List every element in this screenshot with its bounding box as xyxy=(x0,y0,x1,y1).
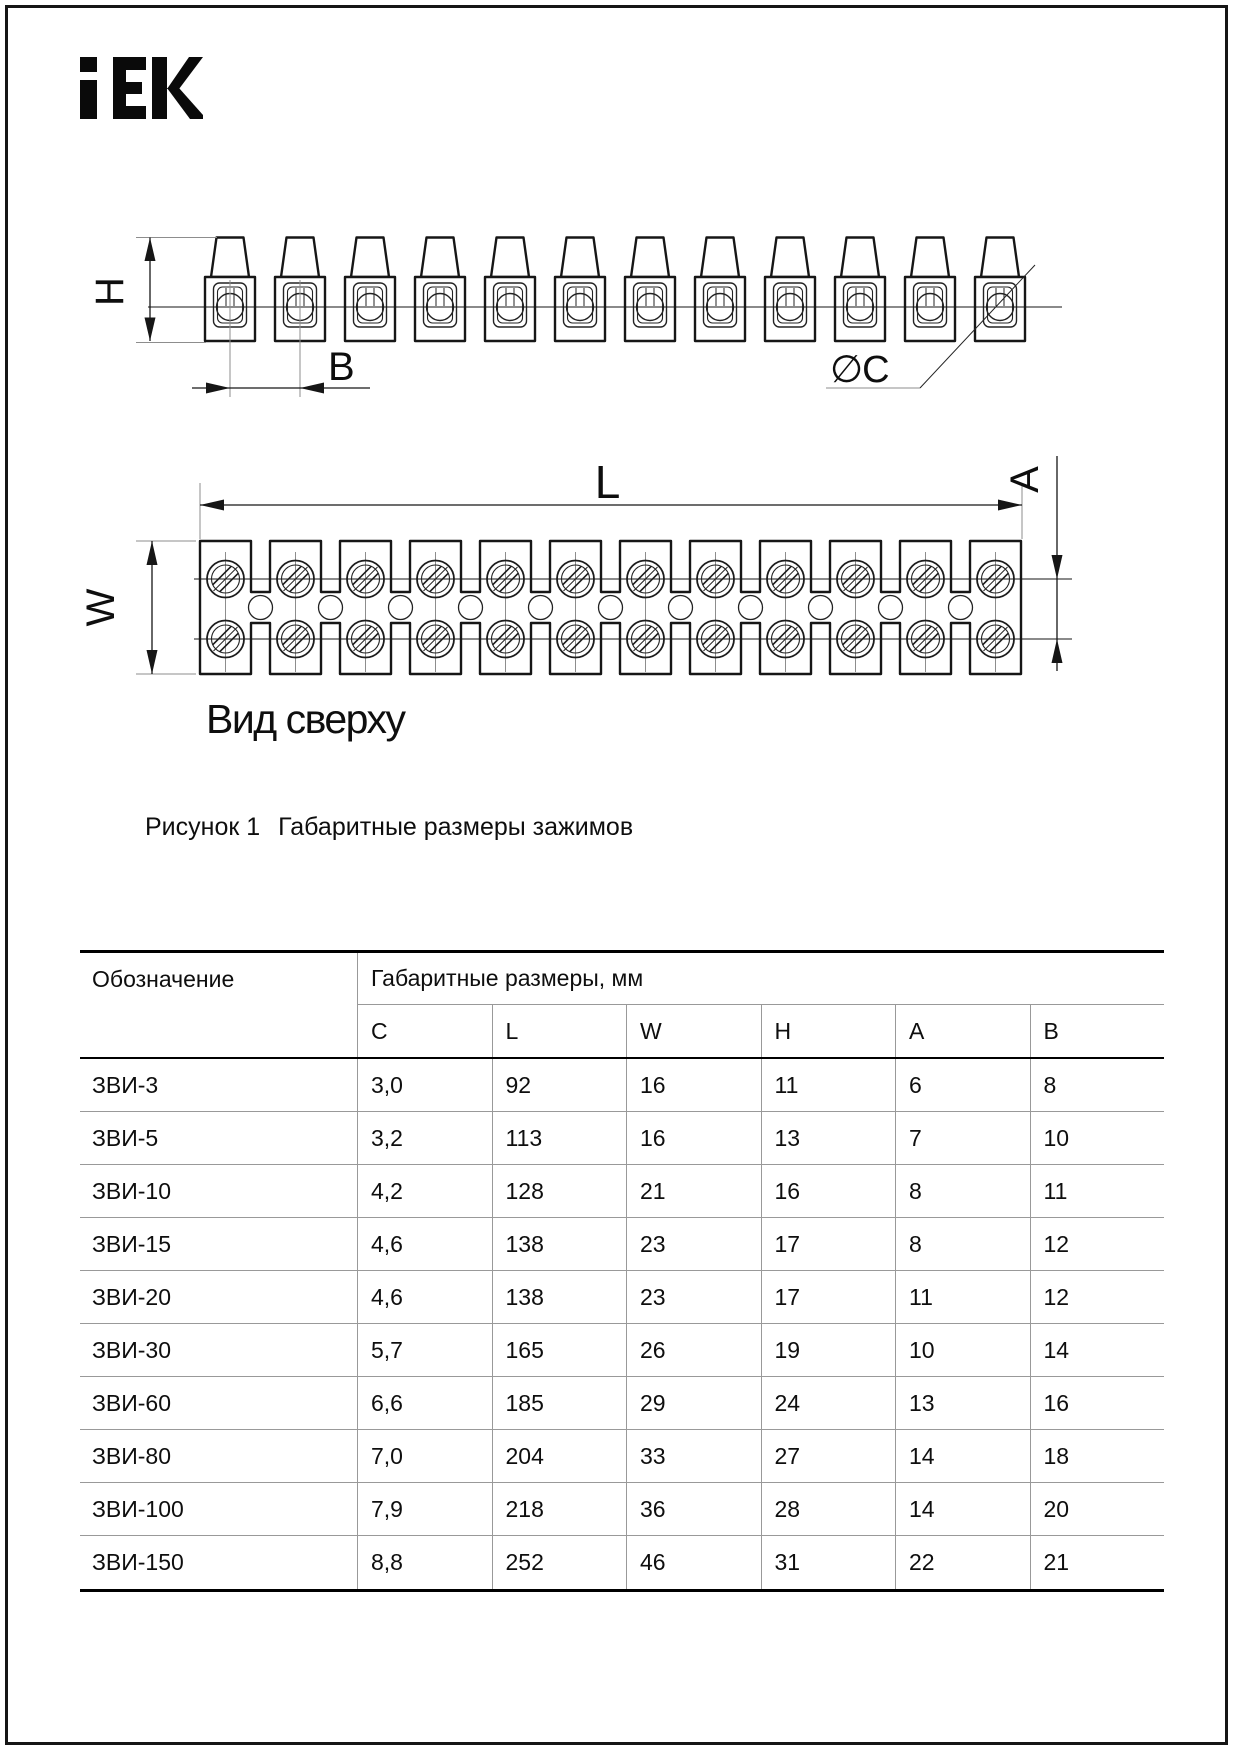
logo-i-stem xyxy=(80,80,97,119)
figure-caption-number: Рисунок 1 xyxy=(145,813,260,842)
row-designation: ЗВИ-10 xyxy=(80,1165,357,1217)
cell-value: 7,0 xyxy=(357,1430,492,1482)
figure-caption: Рисунок 1 Габаритные размеры зажимов xyxy=(145,813,633,842)
a-dimension-label: A xyxy=(1003,466,1047,493)
arrow-up-icon xyxy=(145,238,156,262)
document-page: H B ∅C L W A Вид св xyxy=(0,0,1234,1751)
row-designation: ЗВИ-30 xyxy=(80,1324,357,1376)
cell-value: 128 xyxy=(492,1165,627,1217)
dimensions-table: Обозначение Габаритные размеры, мм CLWHA… xyxy=(80,950,1164,1592)
cell-value: 23 xyxy=(626,1271,761,1323)
cell-value: 14 xyxy=(895,1430,1030,1482)
col-group-header: Габаритные размеры, мм xyxy=(357,953,1164,1005)
cell-value: 4,6 xyxy=(357,1271,492,1323)
cell-value: 23 xyxy=(626,1218,761,1270)
c-dimension-label: ∅C xyxy=(830,349,889,391)
logo-k-stem xyxy=(152,57,167,119)
cell-value: 204 xyxy=(492,1430,627,1482)
row-designation: ЗВИ-15 xyxy=(80,1218,357,1270)
cell-value: 22 xyxy=(895,1536,1030,1589)
cell-value: 7,9 xyxy=(357,1483,492,1535)
cell-value: 4,6 xyxy=(357,1218,492,1270)
table-row: ЗВИ-1508,825246312221 xyxy=(80,1536,1164,1589)
col-header-h: H xyxy=(761,1005,896,1057)
cell-tab xyxy=(911,238,949,278)
logo-i-dot xyxy=(80,57,97,72)
arrow-left-icon xyxy=(200,500,224,511)
cell-value: 11 xyxy=(895,1271,1030,1323)
cell-value: 138 xyxy=(492,1271,627,1323)
col-header-w: W xyxy=(626,1005,761,1057)
cell-tab xyxy=(351,238,389,278)
cell-value: 27 xyxy=(761,1430,896,1482)
cell-value: 12 xyxy=(1030,1271,1165,1323)
arrow-up-icon xyxy=(1052,639,1063,663)
cell-value: 252 xyxy=(492,1536,627,1589)
row-designation: ЗВИ-3 xyxy=(80,1059,357,1111)
table-header-row-2: CLWHAB xyxy=(80,1005,1164,1059)
cell-tab xyxy=(211,238,249,278)
figure-top-view: L W A xyxy=(90,420,1100,690)
cell-tab xyxy=(841,238,879,278)
cell-value: 16 xyxy=(626,1112,761,1164)
logo-e-top xyxy=(113,57,146,70)
cell-value: 3,0 xyxy=(357,1059,492,1111)
logo-k-lower-arm xyxy=(167,88,203,119)
col-header-a: A xyxy=(895,1005,1030,1057)
cell-value: 6 xyxy=(895,1059,1030,1111)
cell-tab xyxy=(421,238,459,278)
cell-value: 10 xyxy=(1030,1112,1165,1164)
cell-value: 24 xyxy=(761,1377,896,1429)
h-dimension-label: H xyxy=(88,278,132,306)
cell-value: 8 xyxy=(895,1218,1030,1270)
cell-value: 6,6 xyxy=(357,1377,492,1429)
cell-value: 113 xyxy=(492,1112,627,1164)
table-row: ЗВИ-154,61382317812 xyxy=(80,1218,1164,1271)
table-row: ЗВИ-104,21282116811 xyxy=(80,1165,1164,1218)
cell-value: 12 xyxy=(1030,1218,1165,1270)
col-header-b: B xyxy=(1030,1005,1165,1057)
cell-value: 7 xyxy=(895,1112,1030,1164)
logo-e-bottom xyxy=(113,106,146,119)
cell-value: 13 xyxy=(761,1112,896,1164)
cell-value: 46 xyxy=(626,1536,761,1589)
cell-value: 11 xyxy=(761,1059,896,1111)
cell-value: 17 xyxy=(761,1271,896,1323)
w-dimension-label: W xyxy=(79,588,123,626)
cell-tab xyxy=(561,238,599,278)
cell-value: 8 xyxy=(895,1165,1030,1217)
table-row: ЗВИ-305,716526191014 xyxy=(80,1324,1164,1377)
row-designation: ЗВИ-100 xyxy=(80,1483,357,1535)
terminal-strip-outline xyxy=(200,541,1021,674)
cell-value: 28 xyxy=(761,1483,896,1535)
cell-value: 16 xyxy=(761,1165,896,1217)
col-header-l: L xyxy=(492,1005,627,1057)
cell-tab xyxy=(631,238,669,278)
cell-value: 21 xyxy=(626,1165,761,1217)
cell-value: 165 xyxy=(492,1324,627,1376)
arrow-left-icon xyxy=(300,383,324,394)
cell-value: 16 xyxy=(626,1059,761,1111)
cell-value: 8 xyxy=(1030,1059,1165,1111)
table-row: ЗВИ-53,21131613710 xyxy=(80,1112,1164,1165)
arrow-down-icon xyxy=(145,318,156,342)
row-designation: ЗВИ-60 xyxy=(80,1377,357,1429)
cell-value: 26 xyxy=(626,1324,761,1376)
cell-value: 20 xyxy=(1030,1483,1165,1535)
terminal-cells-side xyxy=(205,238,1025,342)
figure-side-view: H B ∅C xyxy=(90,180,1100,450)
arrow-right-icon xyxy=(206,383,230,394)
cell-tab xyxy=(701,238,739,278)
cell-value: 185 xyxy=(492,1377,627,1429)
figure-caption-text: Габаритные размеры зажимов xyxy=(278,813,633,842)
cell-value: 4,2 xyxy=(357,1165,492,1217)
logo-k-upper-arm xyxy=(167,57,203,89)
arrow-right-icon xyxy=(998,500,1022,511)
col-header-c: C xyxy=(357,1005,492,1057)
table-body: ЗВИ-33,092161168ЗВИ-53,21131613710ЗВИ-10… xyxy=(80,1059,1164,1589)
table-header-row-1: Обозначение Габаритные размеры, мм xyxy=(80,953,1164,1005)
row-designation: ЗВИ-80 xyxy=(80,1430,357,1482)
top-view-caption: Вид сверху xyxy=(206,696,405,743)
cell-tab xyxy=(281,238,319,278)
cell-value: 8,8 xyxy=(357,1536,492,1589)
table-row: ЗВИ-807,020433271418 xyxy=(80,1430,1164,1483)
col-header-spacer xyxy=(80,1005,357,1057)
cell-value: 138 xyxy=(492,1218,627,1270)
cell-value: 218 xyxy=(492,1483,627,1535)
cell-value: 92 xyxy=(492,1059,627,1111)
cell-value: 17 xyxy=(761,1218,896,1270)
cell-value: 16 xyxy=(1030,1377,1165,1429)
row-designation: ЗВИ-150 xyxy=(80,1536,357,1589)
arrow-up-icon xyxy=(147,541,158,565)
arrow-down-icon xyxy=(1052,555,1063,579)
cell-value: 3,2 xyxy=(357,1112,492,1164)
cell-value: 10 xyxy=(895,1324,1030,1376)
table-row: ЗВИ-33,092161168 xyxy=(80,1059,1164,1112)
cell-value: 19 xyxy=(761,1324,896,1376)
cell-tab xyxy=(491,238,529,278)
cell-value: 33 xyxy=(626,1430,761,1482)
cell-tab xyxy=(981,238,1019,278)
row-designation: ЗВИ-5 xyxy=(80,1112,357,1164)
iek-logo xyxy=(80,57,203,119)
logo-e-mid xyxy=(113,82,142,94)
cell-tab xyxy=(771,238,809,278)
row-designation: ЗВИ-20 xyxy=(80,1271,357,1323)
cell-value: 14 xyxy=(895,1483,1030,1535)
cell-value: 21 xyxy=(1030,1536,1165,1589)
arrow-down-icon xyxy=(147,650,158,674)
cell-value: 31 xyxy=(761,1536,896,1589)
cell-value: 29 xyxy=(626,1377,761,1429)
cell-value: 13 xyxy=(895,1377,1030,1429)
cell-value: 36 xyxy=(626,1483,761,1535)
table-row: ЗВИ-1007,921836281420 xyxy=(80,1483,1164,1536)
l-dimension-label: L xyxy=(595,456,620,508)
table-row: ЗВИ-606,618529241316 xyxy=(80,1377,1164,1430)
cell-value: 11 xyxy=(1030,1165,1165,1217)
cell-value: 18 xyxy=(1030,1430,1165,1482)
b-dimension-label: B xyxy=(328,345,354,389)
table-row: ЗВИ-204,613823171112 xyxy=(80,1271,1164,1324)
col-header-designation: Обозначение xyxy=(80,953,357,1005)
cell-value: 14 xyxy=(1030,1324,1165,1376)
cell-value: 5,7 xyxy=(357,1324,492,1376)
